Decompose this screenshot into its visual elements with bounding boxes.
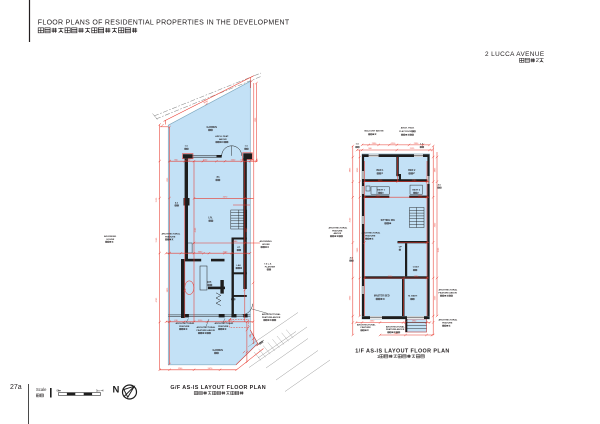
svg-text:KIT.: KIT. [207,281,212,284]
svg-text:ARCHITECTURAL: ARCHITECTURAL [386,325,405,328]
svg-text:Scale: Scale [36,387,47,392]
svg-text:ARCHITECTURAL: ARCHITECTURAL [197,326,216,329]
svg-text:ABOVE: ABOVE [219,138,227,141]
svg-text:UT.: UT. [237,247,241,249]
svg-text:ARCHITECTURAL: ARCHITECTURAL [262,313,281,316]
svg-text:5m: 5m [96,388,101,392]
svg-text:7.5 L.S.: 7.5 L.S. [264,264,272,266]
svg-text:FEATURE ABOVE: FEATURE ABOVE [439,292,458,295]
svg-text:UP: UP [399,247,403,249]
svg-text:LAV.: LAV. [237,264,242,267]
svg-text:27a: 27a [10,384,22,391]
svg-text:COAT: COAT [413,266,420,269]
svg-text:ARCH. FEAT.: ARCH. FEAT. [401,127,415,130]
svg-text:1: 1 [377,354,380,359]
svg-text:FEATURE: FEATURE [442,322,453,325]
svg-text:PLANTER: PLANTER [265,265,276,268]
svg-text:ARCHITECTURAL: ARCHITECTURAL [161,233,180,236]
svg-text:FLOOR PLANS OF RESIDENTIAL PRO: FLOOR PLANS OF RESIDENTIAL PROPERTIES IN… [38,20,290,27]
svg-text:ARCHITECTURAL: ARCHITECTURAL [329,227,348,230]
svg-text:BED 1: BED 1 [376,169,384,172]
svg-text:GARDEN: GARDEN [213,349,224,352]
svg-text:GARDEN: GARDEN [207,126,218,129]
svg-text:ARCHITECTURAL: ARCHITECTURAL [362,232,381,235]
svg-text:FEATURE: FEATURE [361,326,372,329]
svg-text:FLAT ROOF: FLAT ROOF [399,130,412,133]
svg-text:FEATURE: FEATURE [179,325,190,328]
svg-text:HOUSE: HOUSE [262,244,270,246]
svg-text:LIV.: LIV. [208,217,212,220]
svg-text:ARCHITECTURAL: ARCHITECTURAL [215,322,234,325]
svg-text:ABOVE: ABOVE [333,232,341,235]
svg-text:SITTING RM.: SITTING RM. [381,219,396,222]
svg-text:2: 2 [536,58,539,64]
svg-text:FEATURE: FEATURE [218,325,229,328]
svg-text:ADJOINING: ADJOINING [260,240,272,243]
svg-text:N: N [113,385,120,396]
svg-text:FEATURE: FEATURE [332,229,343,232]
svg-text:BALCONY ABOVE: BALCONY ABOVE [365,130,385,133]
svg-text:HOUSE: HOUSE [106,239,114,241]
svg-text:ARCHITECTURAL: ARCHITECTURAL [357,323,376,326]
svg-text:BED 2: BED 2 [408,169,416,172]
svg-text:FEATURE: FEATURE [165,235,176,238]
svg-text:ARCHITECTURAL: ARCHITECTURAL [439,319,458,322]
svg-text:FEATURE ABOVE: FEATURE ABOVE [197,329,216,332]
svg-text:MASTER BED: MASTER BED [374,295,390,298]
svg-text:ST.: ST. [231,296,235,298]
svg-text:1/F AS-IS LAYOUT FLOOR PLAN: 1/F AS-IS LAYOUT FLOOR PLAN [355,348,450,354]
svg-text:ADJOINING: ADJOINING [104,235,116,238]
svg-text:ARCH. FEAT.: ARCH. FEAT. [215,135,229,138]
svg-text:FEATURE: FEATURE [365,235,376,238]
svg-text:FEATURE ABOVE: FEATURE ABOVE [386,328,405,331]
svg-text:BATH 1: BATH 1 [377,188,386,191]
svg-text:M. BATH: M. BATH [408,295,417,298]
svg-text:ARCHITECTURAL: ARCHITECTURAL [439,289,458,292]
svg-text:FEATURE ABOVE: FEATURE ABOVE [262,316,281,319]
svg-text:ARCHITECTURAL: ARCHITECTURAL [176,322,195,325]
svg-text:2 LUCCA AVENUE: 2 LUCCA AVENUE [485,51,544,58]
svg-text:BATH 2: BATH 2 [412,188,421,191]
svg-text:G/F AS-IS LAYOUT FLOOR PLAN: G/F AS-IS LAYOUT FLOOR PLAN [170,385,266,391]
